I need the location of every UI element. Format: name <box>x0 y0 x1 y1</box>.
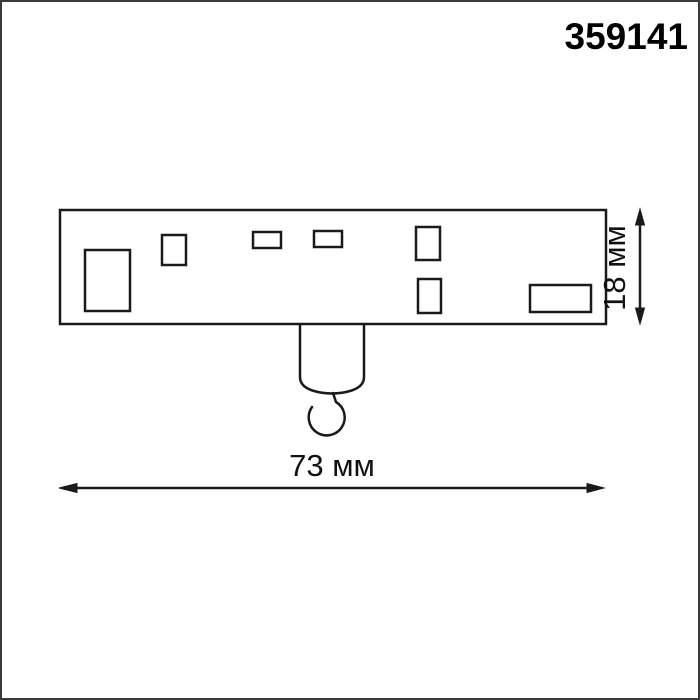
page: 359141 73 мм 18 мм <box>0 0 700 700</box>
dimension-drawing <box>2 2 700 700</box>
height-dimension-label: 18 мм <box>599 207 631 329</box>
width-dimension-label: 73 мм <box>232 450 432 482</box>
hook <box>309 393 345 435</box>
adapter-body-outline <box>60 210 606 324</box>
mounting-stem <box>300 324 364 394</box>
height-dimension-arrow <box>636 209 645 324</box>
width-dimension-arrow <box>59 484 604 493</box>
